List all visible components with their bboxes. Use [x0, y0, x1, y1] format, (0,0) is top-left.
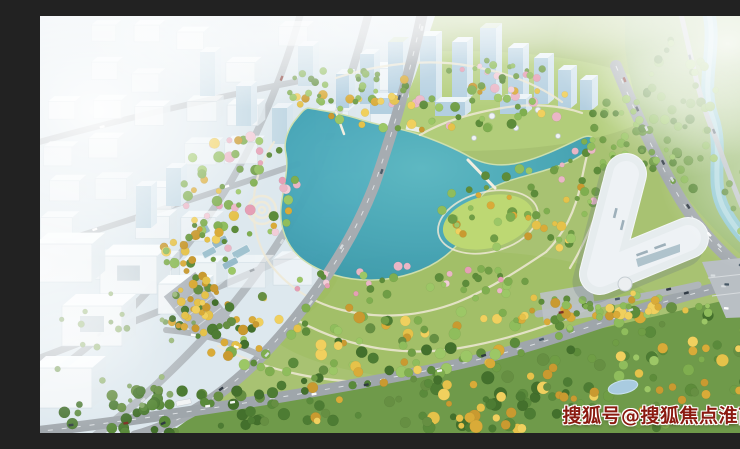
- watermark: 搜狐号@搜狐焦点淮南站: [562, 401, 740, 428]
- entry-plaza: [618, 277, 632, 291]
- scene-canvas: [40, 16, 740, 433]
- aerial-render: 搜狐号@搜狐焦点淮南站: [40, 16, 740, 433]
